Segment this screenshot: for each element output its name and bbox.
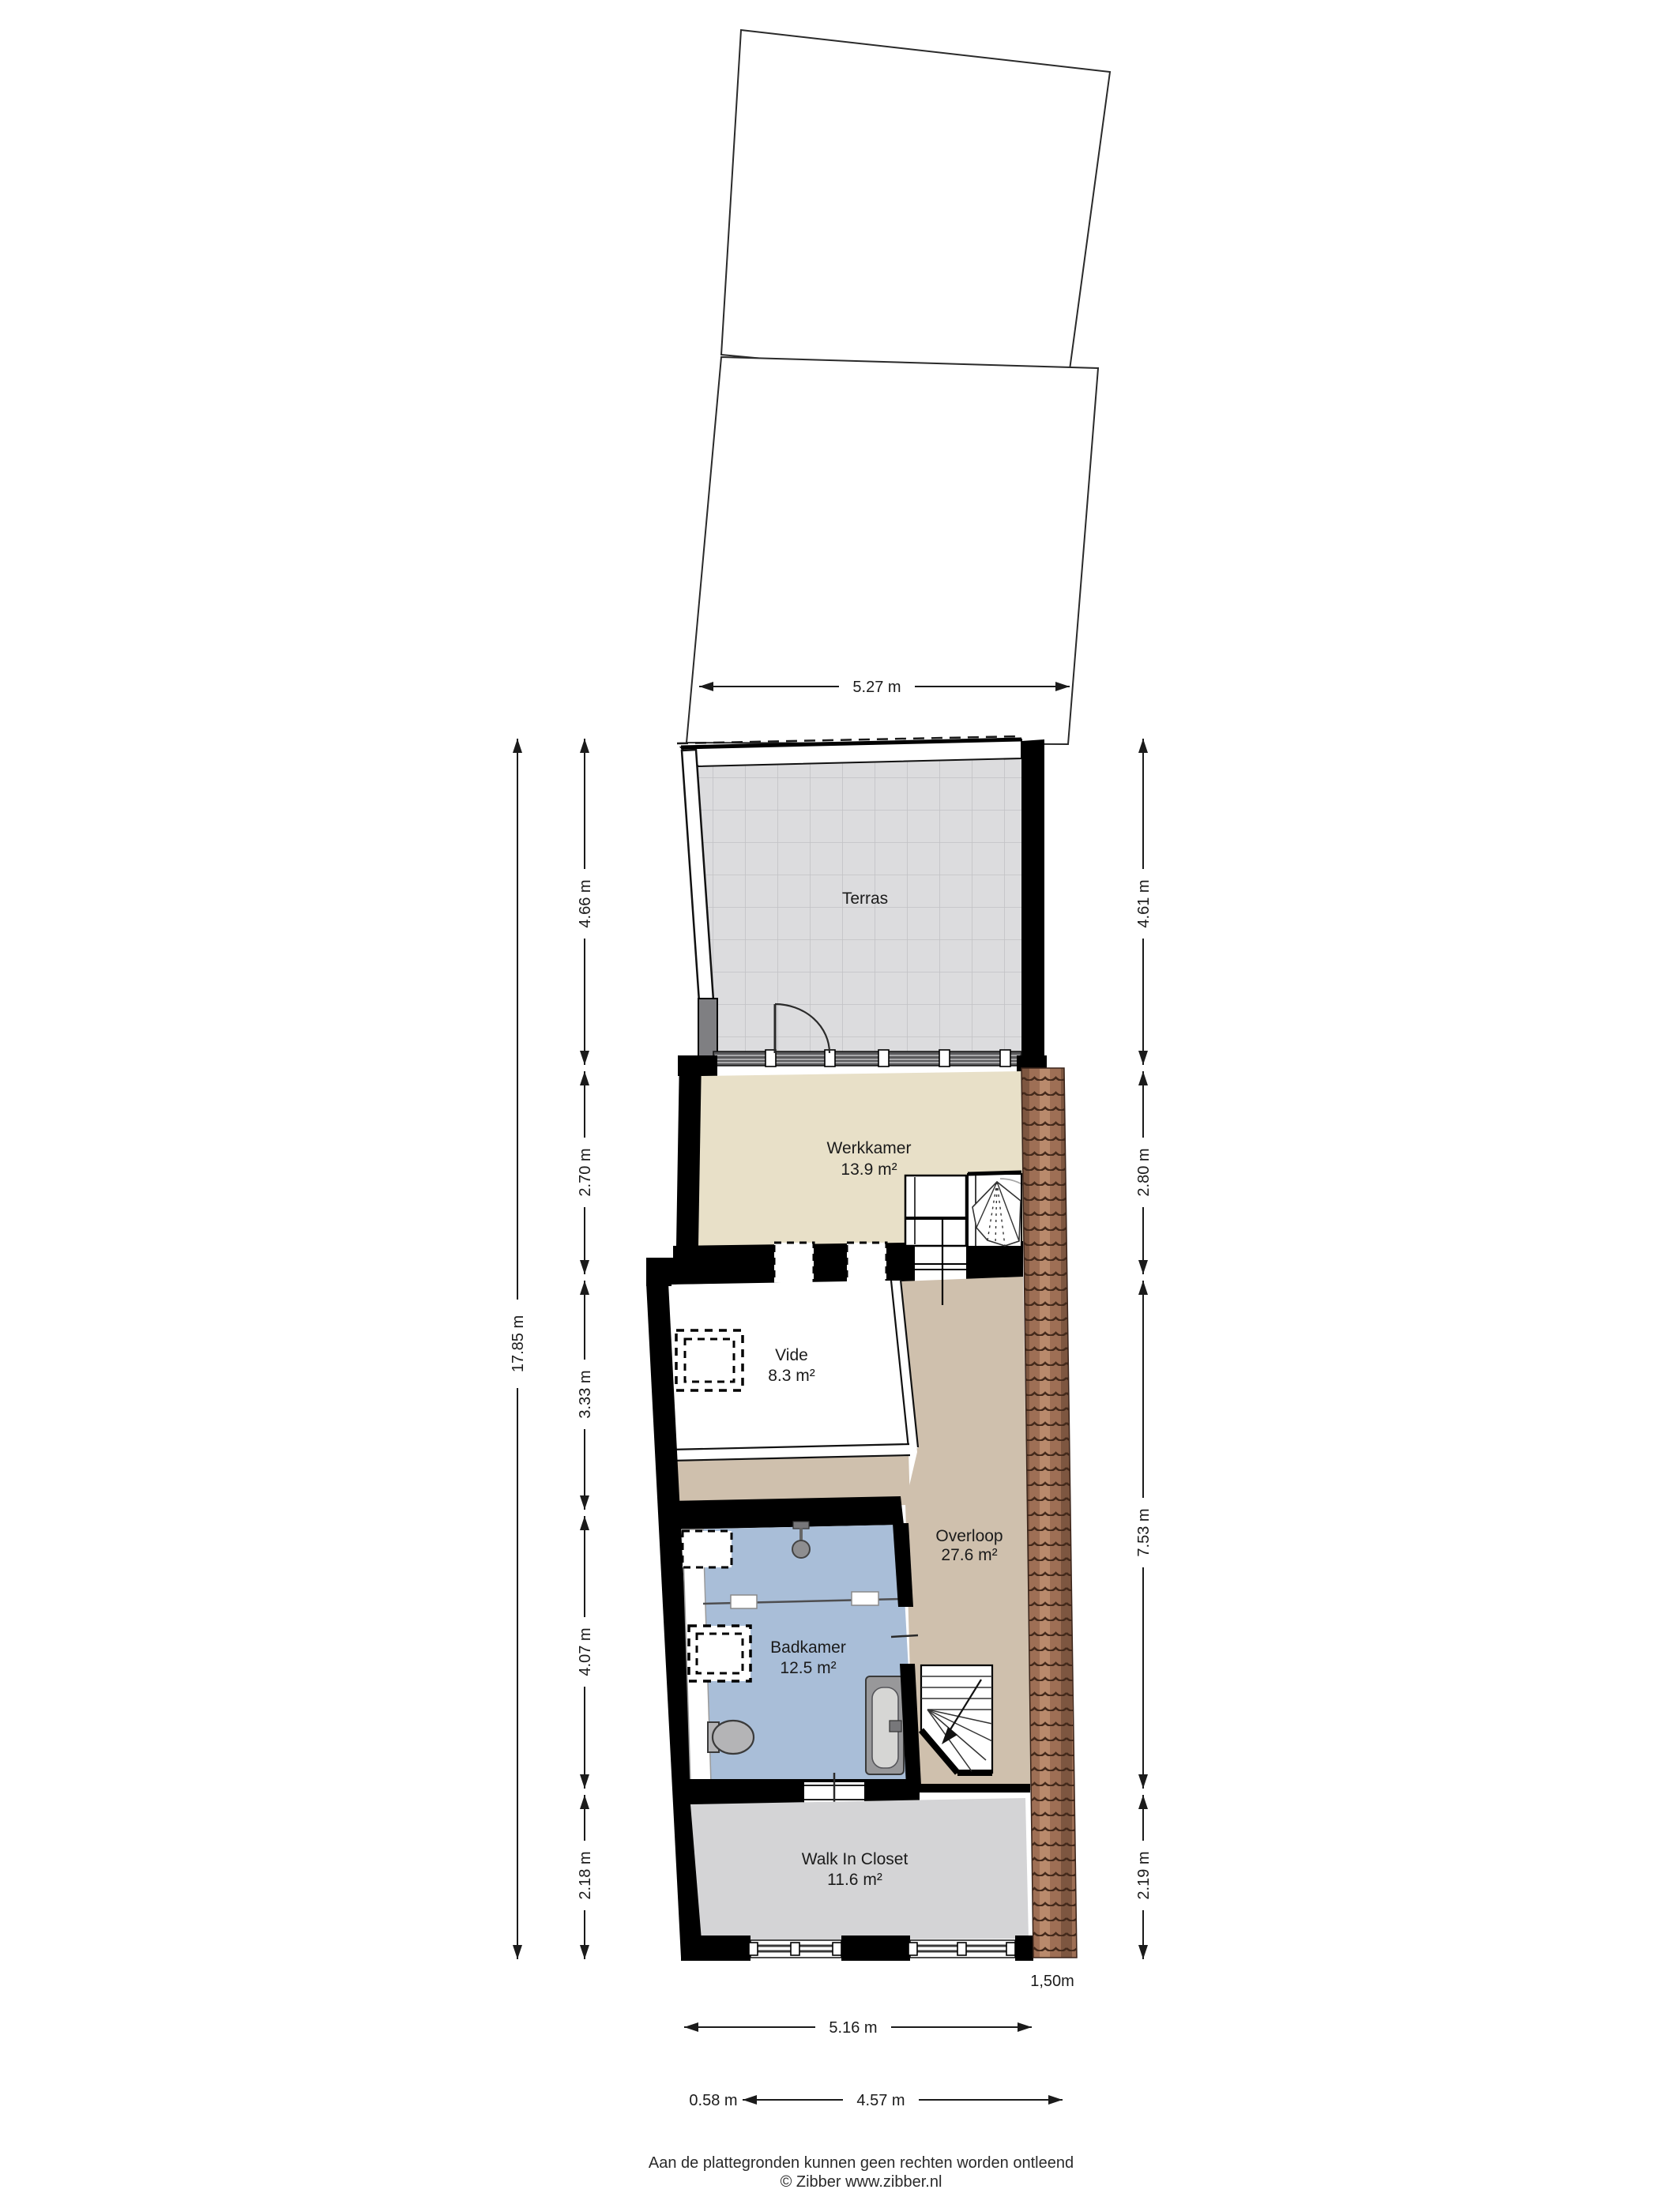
roof-width-label: 1,50m bbox=[1030, 1973, 1074, 1990]
room-badkamer: Badkamer 12.5 m² bbox=[668, 1496, 921, 1815]
room-label-vide: Vide bbox=[775, 1346, 808, 1364]
bathtub-icon bbox=[866, 1676, 904, 1774]
wall-opening-dashed bbox=[847, 1243, 886, 1284]
dim-right-1: 2.80 m bbox=[1135, 1148, 1153, 1196]
dim-bottom-offset-label: 0.58 m bbox=[689, 2092, 737, 2109]
building: Terras Werkkamer 13.9 m² bbox=[646, 736, 1077, 1961]
footer-disclaimer: Aan de plattegronden kunnen geen rechten… bbox=[649, 2154, 1074, 2172]
room-terras: Terras bbox=[681, 739, 1044, 1068]
badkamer-north-wall bbox=[668, 1496, 904, 1529]
toilet-icon bbox=[708, 1721, 754, 1754]
mullion bbox=[957, 1943, 966, 1955]
room-area-werkkamer: 13.9 m² bbox=[841, 1161, 897, 1179]
floorplan-page: 5.27 m Terras bbox=[0, 0, 1659, 2212]
mullion bbox=[1000, 1050, 1010, 1066]
floorplan-canvas: 5.27 m Terras bbox=[0, 0, 1659, 2212]
terras-pillar bbox=[698, 999, 717, 1059]
dim-right-0: 4.61 m bbox=[1135, 879, 1153, 927]
room-vide: Vide 8.3 m² bbox=[670, 1280, 918, 1461]
terras-right-wall bbox=[1021, 739, 1044, 1068]
room-label-badkamer: Badkamer bbox=[770, 1638, 846, 1657]
room-label-terras: Terras bbox=[842, 890, 888, 908]
room-label-closet: Walk In Closet bbox=[802, 1850, 908, 1868]
room-area-vide: 8.3 m² bbox=[768, 1367, 815, 1385]
dimension-right-segments: 4.61 m 2.80 m 7.53 m 2.19 m bbox=[1135, 739, 1153, 1959]
closet-north-wall bbox=[920, 1784, 1030, 1793]
dim-left-1: 2.70 m bbox=[577, 1148, 594, 1196]
mullion bbox=[833, 1943, 841, 1955]
room-label-werkkamer: Werkkamer bbox=[827, 1139, 912, 1157]
mullion bbox=[908, 1943, 917, 1955]
closet-floor bbox=[690, 1798, 1029, 1940]
roof-tiles bbox=[1021, 1068, 1077, 1958]
room-area-badkamer: 12.5 m² bbox=[780, 1659, 836, 1677]
dimension-left-total: 17.85 m bbox=[510, 739, 527, 1959]
dim-left-2: 3.33 m bbox=[577, 1370, 594, 1418]
footer-credit: © Zibber www.zibber.nl bbox=[781, 2173, 942, 2191]
dimension-bottom-width: 5.16 m bbox=[684, 2019, 1032, 2037]
footer: Aan de plattegronden kunnen geen rechten… bbox=[649, 2154, 1074, 2191]
dim-top-width-label: 5.27 m bbox=[852, 679, 901, 696]
dim-left-total-label: 17.85 m bbox=[510, 1315, 527, 1372]
dim-left-3: 4.07 m bbox=[577, 1627, 594, 1676]
room-walk-in-closet: Walk In Closet 11.6 m² bbox=[681, 1798, 1033, 1961]
parcel-outline-upper bbox=[721, 30, 1110, 387]
mullion bbox=[939, 1050, 950, 1066]
skylight-icon bbox=[676, 1330, 743, 1390]
dim-left-0: 4.66 m bbox=[577, 879, 594, 927]
dimension-left-segments: 4.66 m 2.70 m 3.33 m 4.07 m 2.18 m bbox=[577, 739, 594, 1959]
dim-right-2: 7.53 m bbox=[1135, 1508, 1153, 1556]
room-area-closet: 11.6 m² bbox=[827, 1871, 882, 1889]
werkkamer-left-wall bbox=[676, 1057, 702, 1246]
dim-bottom-width-label: 5.16 m bbox=[829, 2019, 877, 2037]
closet-south-wall bbox=[681, 1935, 1033, 1961]
dim-left-4: 2.18 m bbox=[577, 1851, 594, 1899]
dim-right-3: 2.19 m bbox=[1135, 1851, 1153, 1899]
mullion bbox=[791, 1943, 799, 1955]
mullion bbox=[878, 1050, 889, 1066]
dim-bottom-inner-label: 4.57 m bbox=[856, 2092, 905, 2109]
wall-opening-dashed bbox=[774, 1243, 814, 1284]
mullion bbox=[749, 1943, 758, 1955]
room-area-overloop: 27.6 m² bbox=[941, 1546, 997, 1564]
terras-floor bbox=[696, 755, 1021, 1062]
dimension-bottom-inner: 0.58 m 4.57 m bbox=[689, 2092, 1063, 2109]
mullion bbox=[1006, 1943, 1015, 1955]
room-label-overloop: Overloop bbox=[935, 1527, 1003, 1545]
